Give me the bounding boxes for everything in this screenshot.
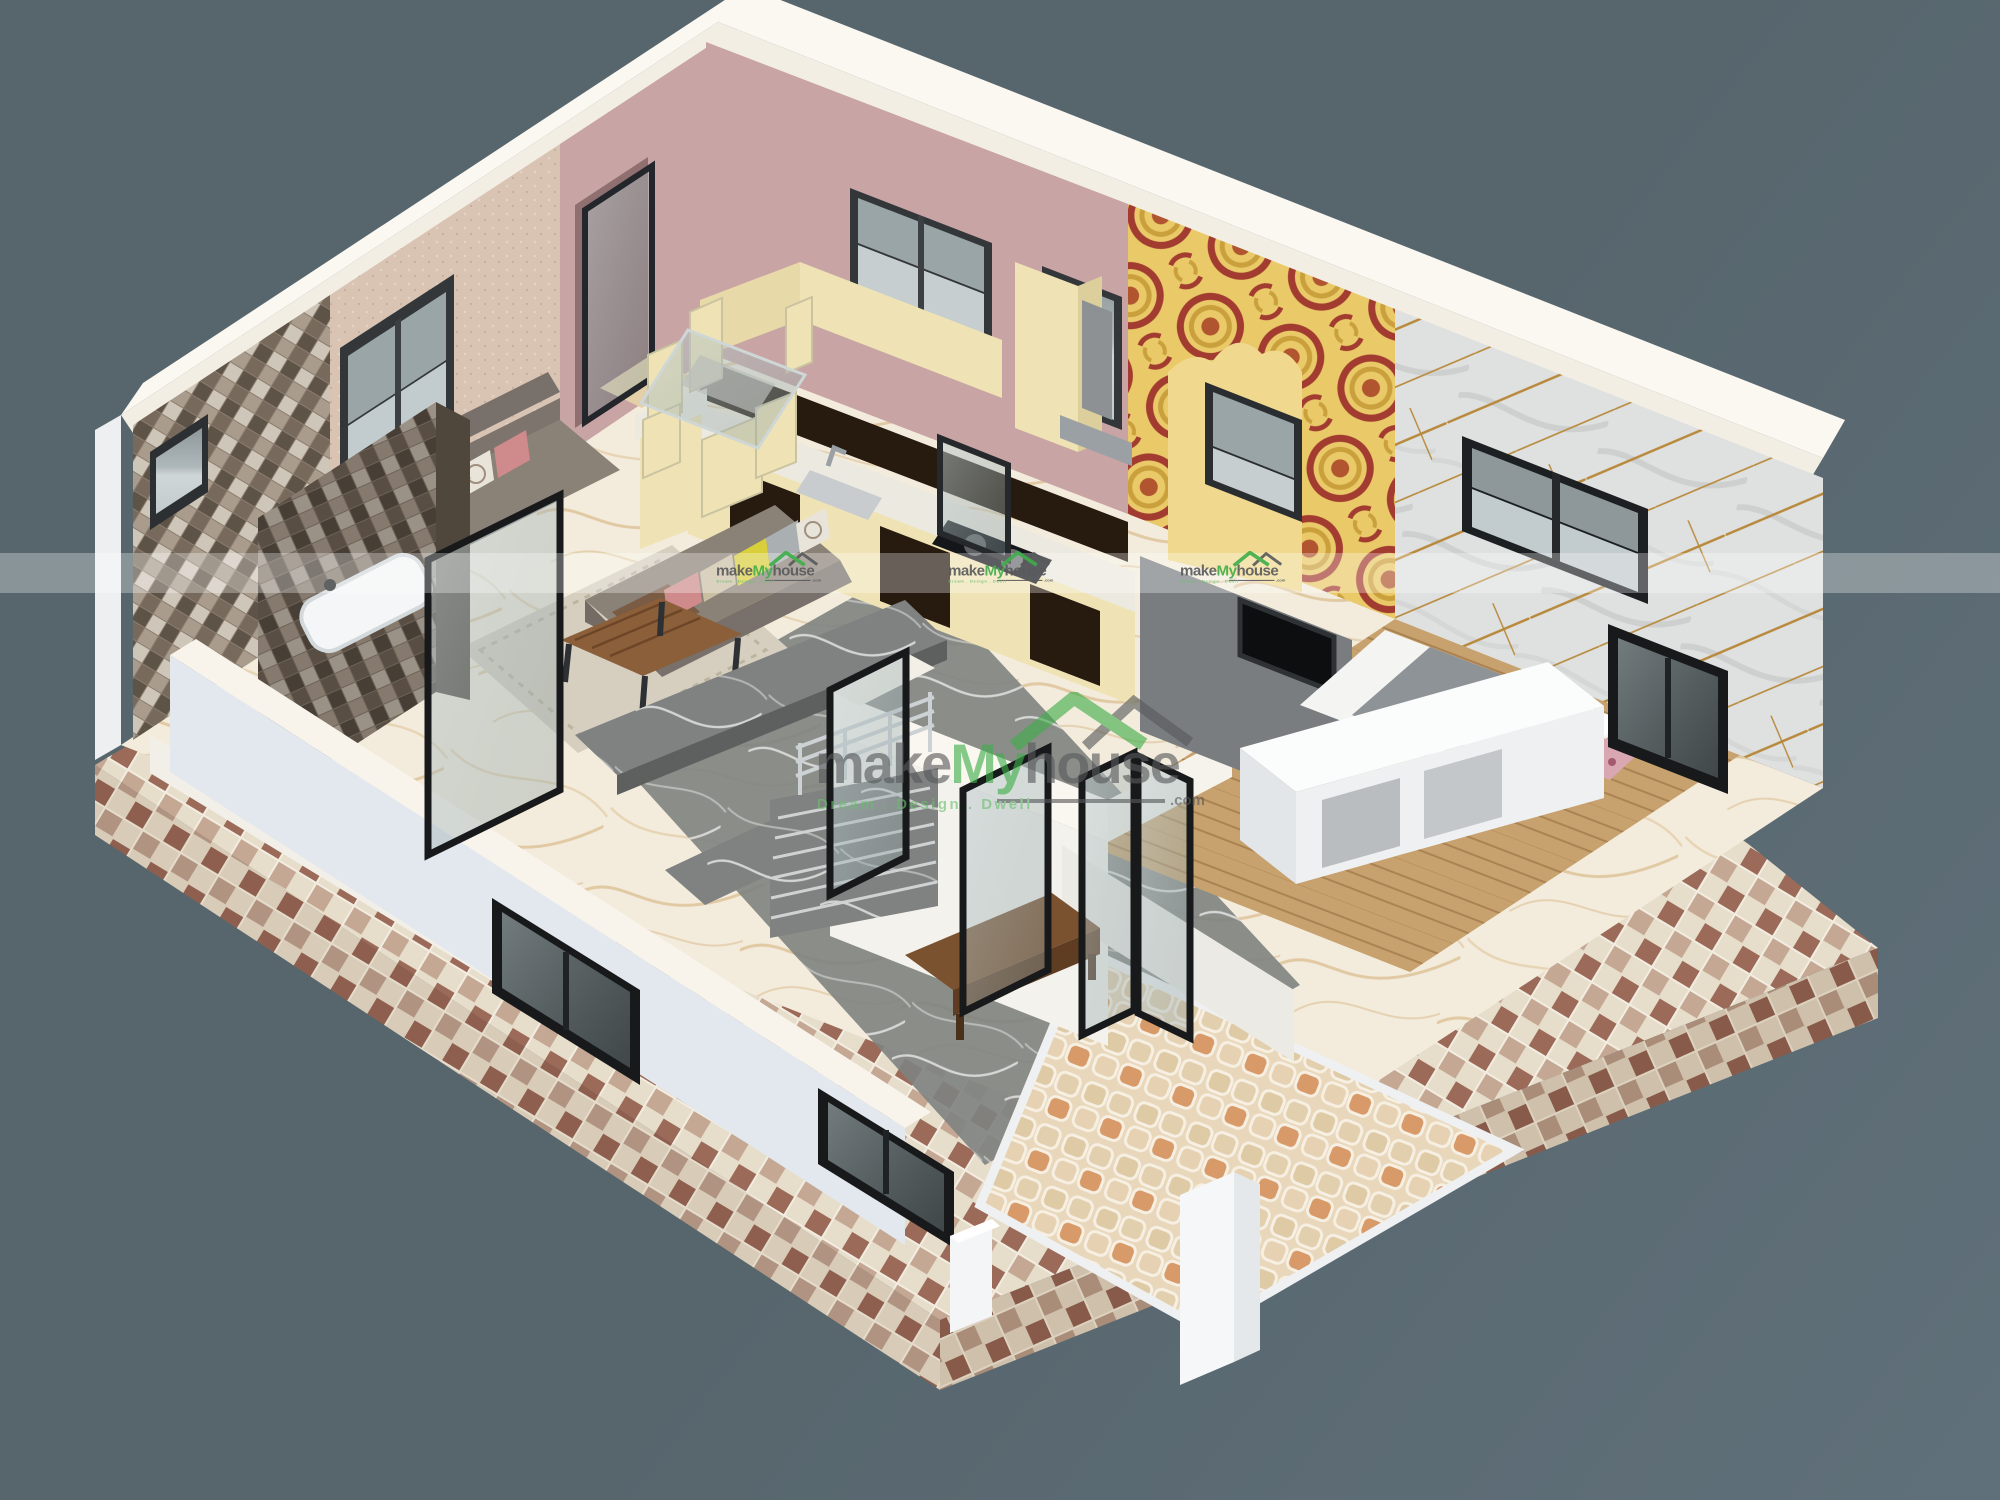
floor-plan-screenshot: makeMyhouse .com Dream . Design . Dwell … <box>0 0 2000 1500</box>
glass-door <box>585 166 652 422</box>
brand-tagline: Dream . Design . Dwell <box>1181 579 1239 584</box>
brand-wordmark: makeMyhouse <box>1180 563 1278 578</box>
brand-wordmark: makeMyhouse <box>716 563 814 578</box>
porch-pillar <box>1180 1172 1234 1385</box>
watermark-logo-small: makeMyhouse .com Dream . Design . Dwell <box>716 551 821 586</box>
chimney-hood <box>1082 300 1112 420</box>
brand-wordmark: makeMyhouse <box>948 563 1046 578</box>
watermark-logo-small: makeMyhouse .com Dream . Design . Dwell <box>1180 551 1285 586</box>
porch-pillar-side <box>1234 1172 1260 1362</box>
brand-wordmark: makeMyhouse <box>815 736 1179 792</box>
watermark-logo-main: makeMyhouse .com Dream . Design . Dwell <box>815 692 1205 822</box>
glass-panel <box>428 495 560 855</box>
brand-tagline: Dream . Design . Dwell <box>717 579 775 584</box>
brand-tagline: Dream . Design . Dwell <box>949 579 1007 584</box>
watermark-logo-small: makeMyhouse .com Dream . Design . Dwell <box>948 551 1053 586</box>
brand-tagline: Dream . Design . Dwell <box>817 796 1033 813</box>
